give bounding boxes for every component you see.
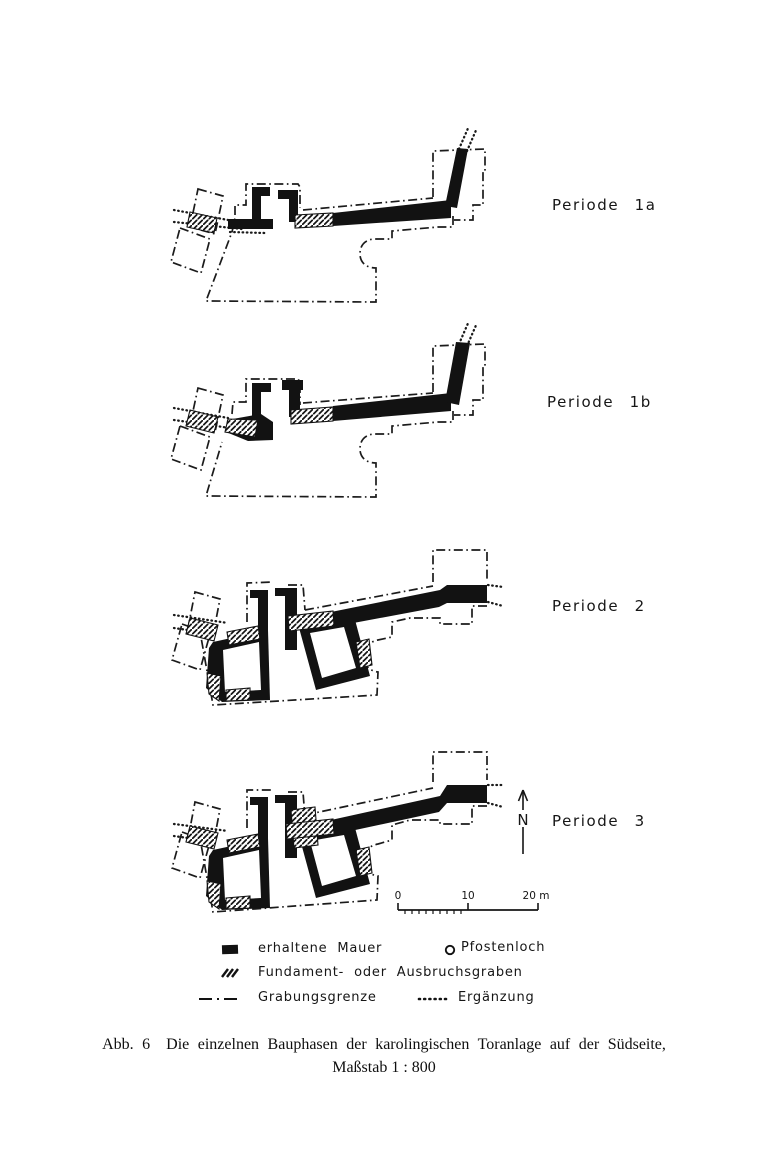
caption-scale-line: Maßstab 1 : 800 (34, 1056, 734, 1079)
posthole-circle-icon (443, 944, 457, 956)
hatch-icon (219, 966, 241, 980)
north-label: N (517, 811, 528, 829)
dash-dot-line-icon (197, 993, 243, 1005)
legend-label-grabungsgrenze: Grabungsgrenze (258, 990, 377, 1005)
period-label-1b: Periode 1b (547, 393, 652, 411)
caption-number: Abb. 6 (102, 1036, 150, 1053)
preserved-walls (228, 148, 468, 229)
north-arrow-icon: N (505, 786, 545, 861)
period-label-1a: Periode 1a (552, 196, 657, 214)
scale-bar: 0 10 20 m (388, 886, 558, 918)
scale-tick-0: 0 (395, 890, 402, 902)
caption-text: Die einzelnen Bauphasen der karolingisch… (166, 1036, 666, 1053)
period-label-3: Periode 3 (552, 812, 646, 830)
plan-periode-1a (170, 115, 500, 315)
legend-label-erhaltene-mauer: erhaltene Mauer (258, 941, 382, 956)
plan-periode-1b (170, 310, 500, 510)
period-label-2: Periode 2 (552, 597, 646, 615)
scanned-figure-page: .gg{fill:none;stroke:#1b1b1b;stroke-widt… (0, 0, 768, 1170)
legend-label-pfostenloch: Pfostenloch (461, 940, 545, 955)
dotted-line-icon (417, 993, 453, 1005)
solid-wall-icon (221, 944, 239, 955)
legend-label-fundament: Fundament- oder Ausbruchsgraben (258, 965, 523, 980)
plan-periode-2 (170, 530, 510, 730)
legend-label-ergaenzung: Ergänzung (458, 990, 535, 1005)
figure-caption: Abb. 6Die einzelnen Bauphasen der karoli… (34, 1033, 734, 1079)
scale-tick-10: 10 (461, 890, 474, 902)
scale-tick-20m: 20 m (523, 890, 550, 902)
